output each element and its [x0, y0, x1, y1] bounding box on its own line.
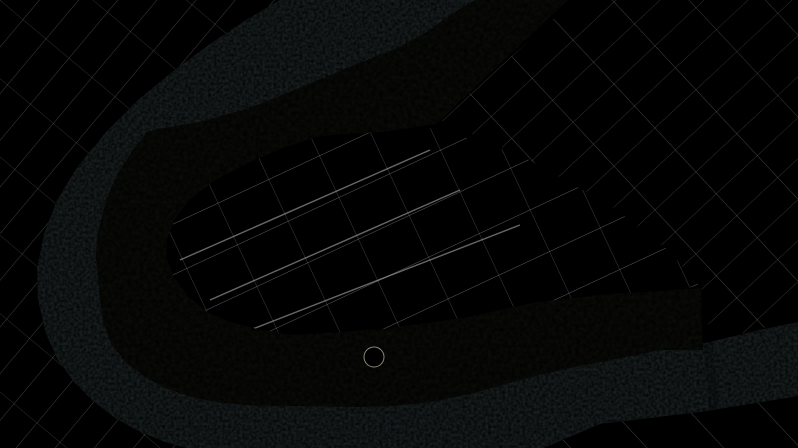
overlook-plaza: [364, 347, 384, 367]
plaza-core: [370, 353, 379, 362]
masterplan-svg: [0, 0, 798, 448]
masterplan-map: [0, 0, 798, 448]
